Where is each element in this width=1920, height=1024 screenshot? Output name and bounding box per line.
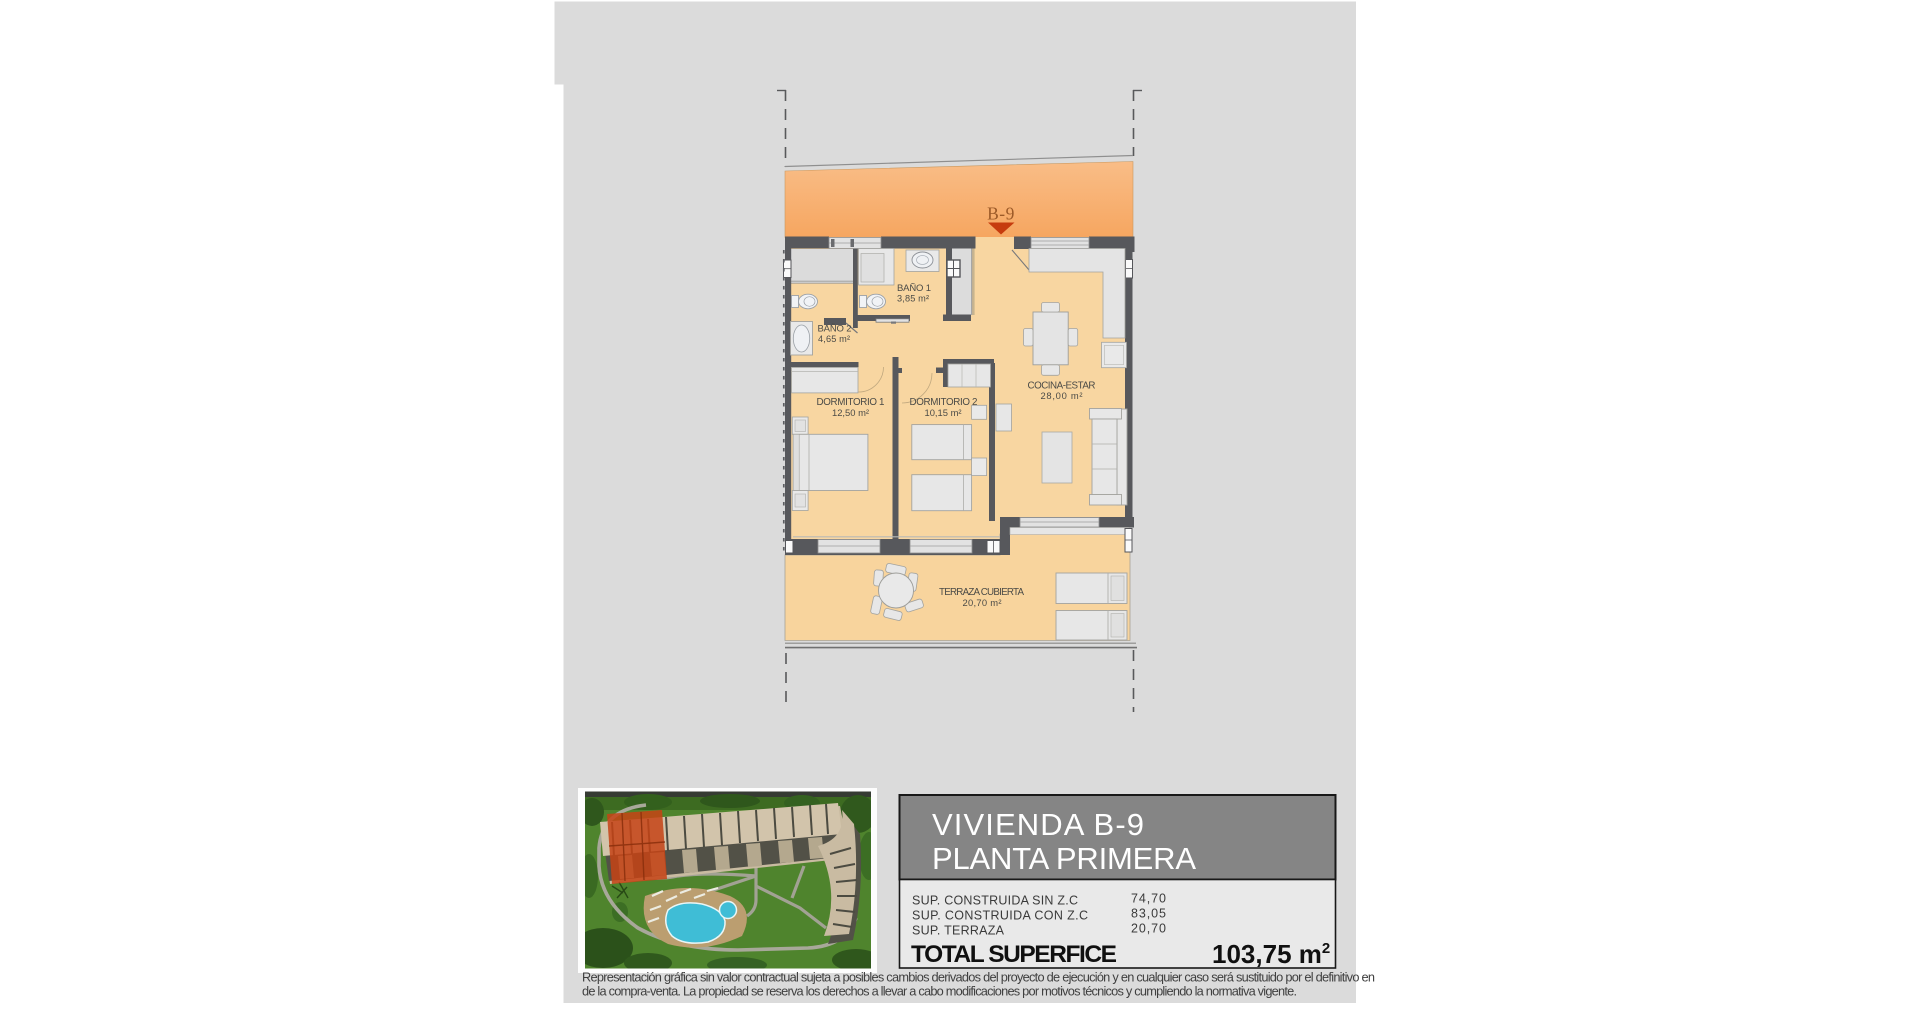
svg-text:20,70 m²: 20,70 m² <box>963 597 1002 608</box>
svg-text:10,15 m²: 10,15 m² <box>925 407 962 418</box>
svg-text:74,70: 74,70 <box>1131 892 1166 906</box>
svg-text:BAÑO 2: BAÑO 2 <box>818 324 852 335</box>
svg-text:SUP. CONSTRUIDA CON Z.C: SUP. CONSTRUIDA CON Z.C <box>912 909 1088 923</box>
svg-text:12,50 m²: 12,50 m² <box>832 407 869 418</box>
svg-text:BAÑO 1: BAÑO 1 <box>897 283 931 294</box>
svg-text:SUP. CONSTRUIDA SIN Z.C: SUP. CONSTRUIDA SIN Z.C <box>912 894 1078 908</box>
svg-text:3,85 m²: 3,85 m² <box>897 294 929 304</box>
svg-text:28,00 m²: 28,00 m² <box>1041 390 1083 401</box>
svg-text:83,05: 83,05 <box>1131 907 1166 921</box>
svg-text:Representación gráfica sin val: Representación gráfica sin valor contrac… <box>582 970 1375 985</box>
svg-text:4,65 m²: 4,65 m² <box>818 334 850 344</box>
svg-text:103,75 m2: 103,75 m2 <box>1212 939 1330 969</box>
svg-text:20,70: 20,70 <box>1131 922 1166 936</box>
svg-text:de la compra-venta. La propied: de la compra-venta. La propiedad se rese… <box>582 984 1297 999</box>
svg-text:VIVIENDA B-9: VIVIENDA B-9 <box>932 807 1144 842</box>
svg-text:B-9: B-9 <box>987 204 1015 224</box>
svg-text:TOTAL SUPERFICE: TOTAL SUPERFICE <box>911 941 1117 968</box>
svg-text:PLANTA PRIMERA: PLANTA PRIMERA <box>932 841 1196 876</box>
svg-text:SUP. TERRAZA: SUP. TERRAZA <box>912 924 1005 938</box>
